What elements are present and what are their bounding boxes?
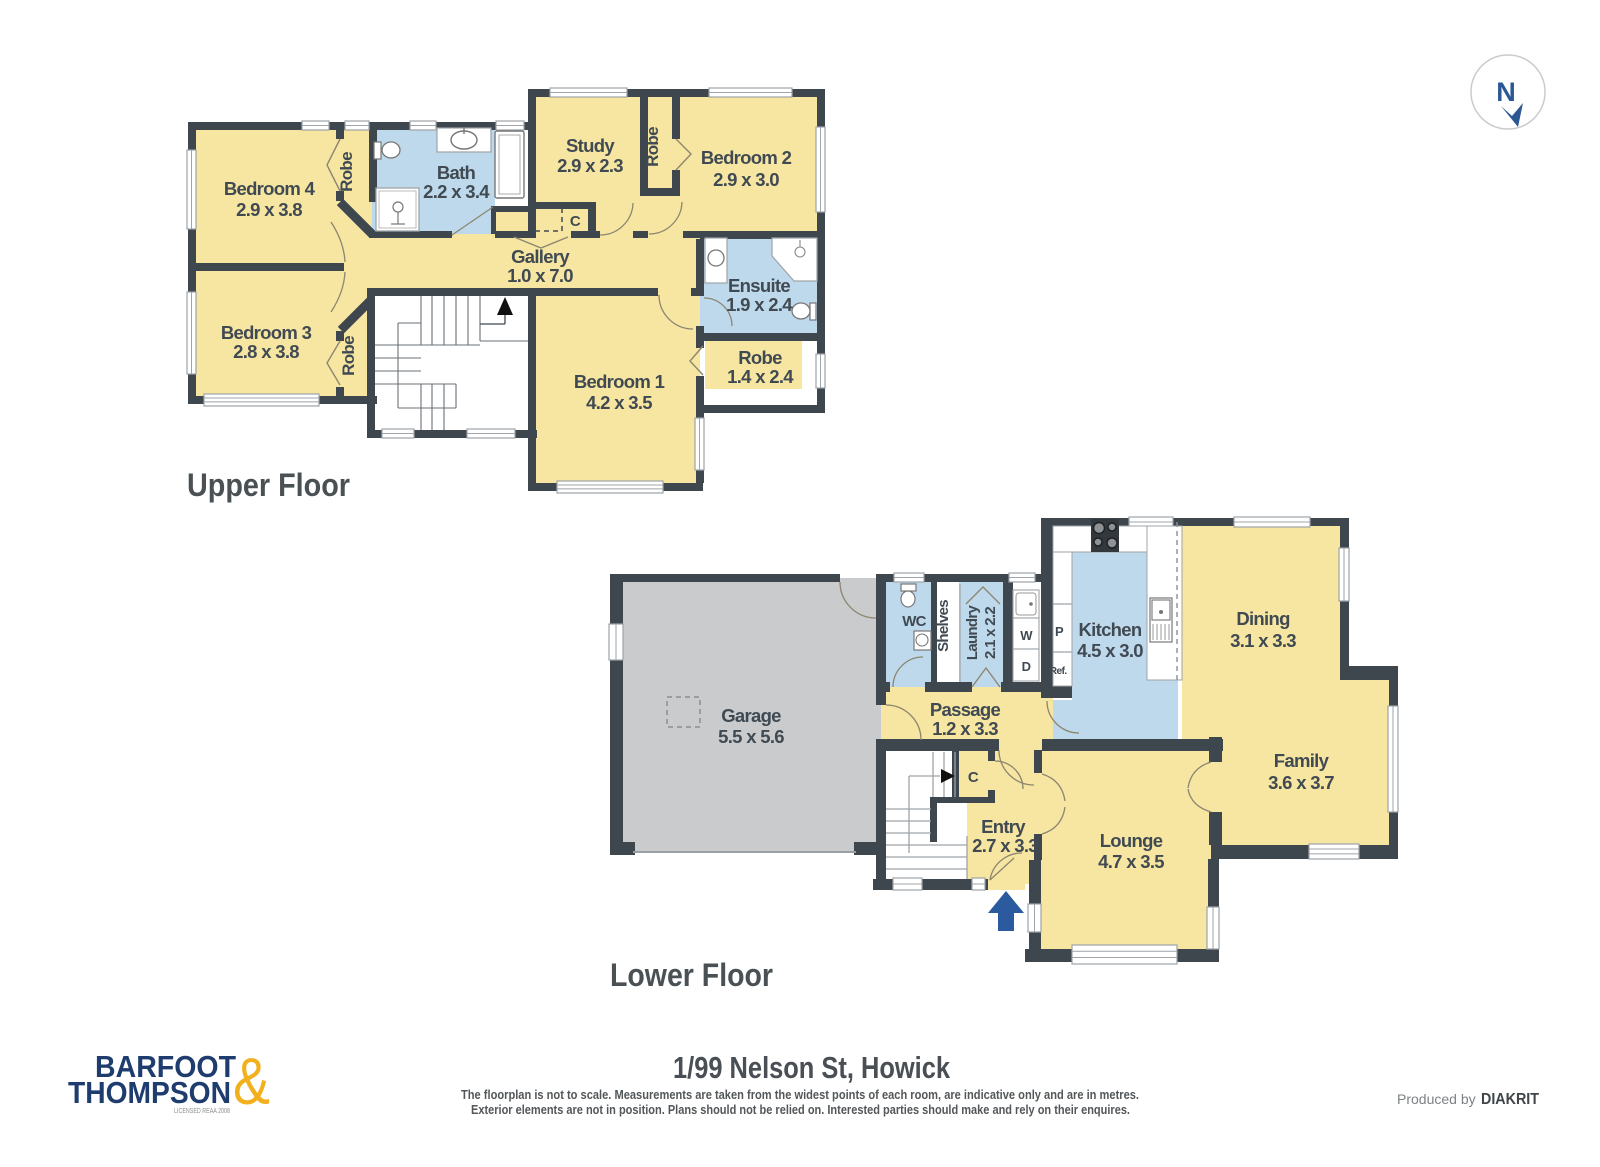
svg-text:Laundry: Laundry <box>964 605 981 661</box>
svg-text:Bedroom 3: Bedroom 3 <box>221 322 312 343</box>
svg-text:D: D <box>1022 659 1031 674</box>
svg-text:W: W <box>1020 628 1033 643</box>
svg-text:2.8 x 3.8: 2.8 x 3.8 <box>233 341 299 362</box>
svg-text:The floorplan is not to scale.: The floorplan is not to scale. Measureme… <box>461 1088 1139 1102</box>
svg-text:1.0 x 7.0: 1.0 x 7.0 <box>507 265 573 286</box>
svg-text:Robe: Robe <box>339 336 358 376</box>
svg-text:Lower Floor: Lower Floor <box>610 957 773 993</box>
svg-text:&: & <box>233 1044 270 1118</box>
svg-text:2.9 x 3.0: 2.9 x 3.0 <box>713 169 779 190</box>
svg-text:Bedroom 2: Bedroom 2 <box>701 147 792 168</box>
svg-text:LICENSED REAA 2008: LICENSED REAA 2008 <box>174 1106 230 1115</box>
svg-text:3.1 x 3.3: 3.1 x 3.3 <box>1230 630 1296 651</box>
svg-text:C: C <box>968 769 979 786</box>
svg-text:1/99 Nelson St, Howick: 1/99 Nelson St, Howick <box>673 1050 951 1085</box>
svg-text:THOMPSON: THOMPSON <box>68 1075 231 1110</box>
svg-text:Gallery: Gallery <box>511 246 570 267</box>
svg-text:WC: WC <box>902 613 926 630</box>
svg-text:Robe: Robe <box>738 347 782 368</box>
svg-text:Shelves: Shelves <box>935 600 952 652</box>
svg-text:Entry: Entry <box>981 816 1026 837</box>
svg-text:Bath: Bath <box>437 162 476 183</box>
svg-text:Ref.: Ref. <box>1049 665 1067 677</box>
svg-text:P: P <box>1055 624 1064 639</box>
svg-text:Exterior elements are not in p: Exterior elements are not in position. P… <box>471 1103 1130 1117</box>
svg-text:2.9 x 3.8: 2.9 x 3.8 <box>236 199 302 220</box>
svg-text:2.7 x 3.3: 2.7 x 3.3 <box>972 835 1038 856</box>
svg-text:2.9 x 2.3: 2.9 x 2.3 <box>557 155 623 176</box>
svg-text:Kitchen: Kitchen <box>1079 619 1142 640</box>
svg-text:Family: Family <box>1274 750 1330 771</box>
svg-text:4.5 x 3.0: 4.5 x 3.0 <box>1077 640 1143 661</box>
svg-text:DIAKRIT: DIAKRIT <box>1481 1091 1539 1108</box>
svg-text:Upper Floor: Upper Floor <box>187 467 350 503</box>
svg-text:3.6 x 3.7: 3.6 x 3.7 <box>1268 772 1334 793</box>
svg-text:2.2 x 3.4: 2.2 x 3.4 <box>423 181 490 202</box>
svg-text:5.5 x 5.6: 5.5 x 5.6 <box>718 726 784 747</box>
svg-text:Produced by: Produced by <box>1397 1091 1476 1107</box>
svg-text:4.2 x 3.5: 4.2 x 3.5 <box>586 392 652 413</box>
svg-text:1.2 x 3.3: 1.2 x 3.3 <box>932 718 998 739</box>
svg-text:4.7 x 3.5: 4.7 x 3.5 <box>1098 851 1164 872</box>
svg-text:2.1 x 2.2: 2.1 x 2.2 <box>982 607 999 659</box>
svg-text:Robe: Robe <box>643 127 662 167</box>
svg-text:Bedroom 1: Bedroom 1 <box>574 371 665 392</box>
svg-text:Robe: Robe <box>337 152 356 192</box>
svg-text:Dining: Dining <box>1236 608 1290 629</box>
svg-text:C: C <box>570 213 581 230</box>
svg-text:N: N <box>1496 77 1516 107</box>
svg-text:Ensuite: Ensuite <box>728 275 790 296</box>
svg-text:1.9 x 2.4: 1.9 x 2.4 <box>726 294 793 315</box>
svg-text:Garage: Garage <box>721 705 781 726</box>
svg-text:Study: Study <box>566 135 615 156</box>
svg-text:Passage: Passage <box>930 699 1001 720</box>
svg-text:Lounge: Lounge <box>1100 830 1163 851</box>
svg-text:1.4 x 2.4: 1.4 x 2.4 <box>727 366 794 387</box>
svg-text:Bedroom 4: Bedroom 4 <box>224 178 316 199</box>
